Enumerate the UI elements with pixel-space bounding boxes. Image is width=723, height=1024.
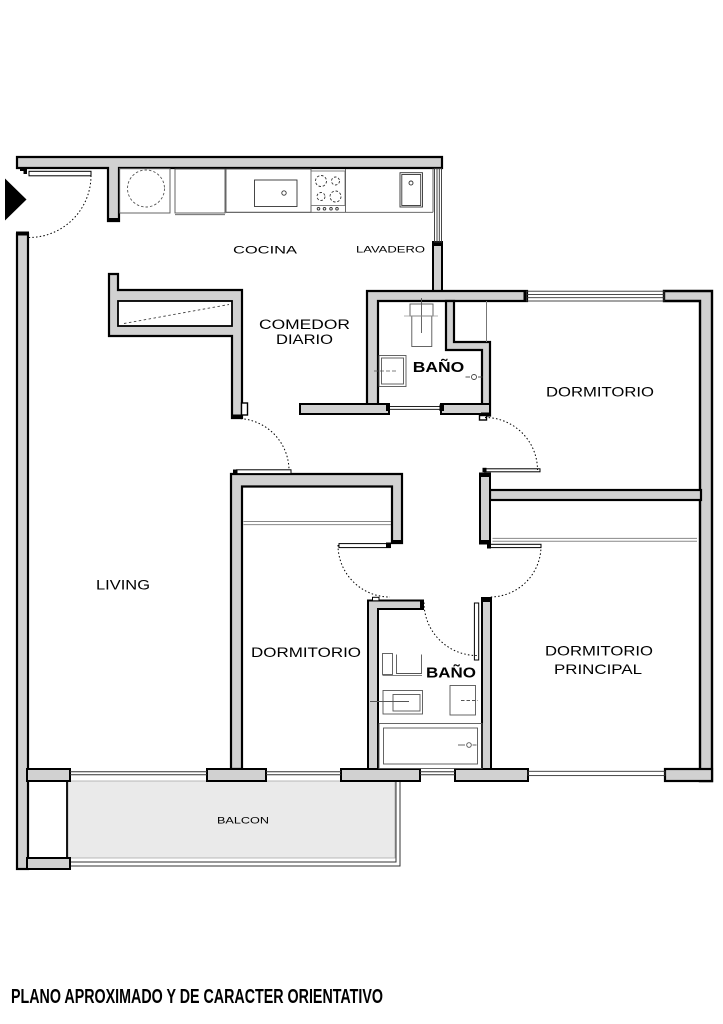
svg-text:COCINA: COCINA bbox=[233, 245, 298, 257]
svg-text:BALCON: BALCON bbox=[217, 816, 269, 827]
svg-text:DIARIO: DIARIO bbox=[276, 332, 333, 347]
svg-text:DORMITORIO: DORMITORIO bbox=[545, 643, 653, 659]
svg-text:DORMITORIO: DORMITORIO bbox=[546, 384, 654, 400]
svg-text:COMEDOR: COMEDOR bbox=[259, 317, 350, 332]
svg-text:BAÑO: BAÑO bbox=[426, 664, 476, 682]
svg-text:LIVING: LIVING bbox=[96, 578, 150, 593]
svg-text:PLANO APROXIMADO Y DE CARACTER: PLANO APROXIMADO Y DE CARACTER ORIENTATI… bbox=[11, 986, 383, 1008]
svg-text:LAVADERO: LAVADERO bbox=[356, 245, 425, 256]
svg-text:PRINCIPAL: PRINCIPAL bbox=[554, 661, 642, 677]
svg-text:BAÑO: BAÑO bbox=[413, 358, 465, 376]
svg-text:DORMITORIO: DORMITORIO bbox=[251, 644, 361, 660]
